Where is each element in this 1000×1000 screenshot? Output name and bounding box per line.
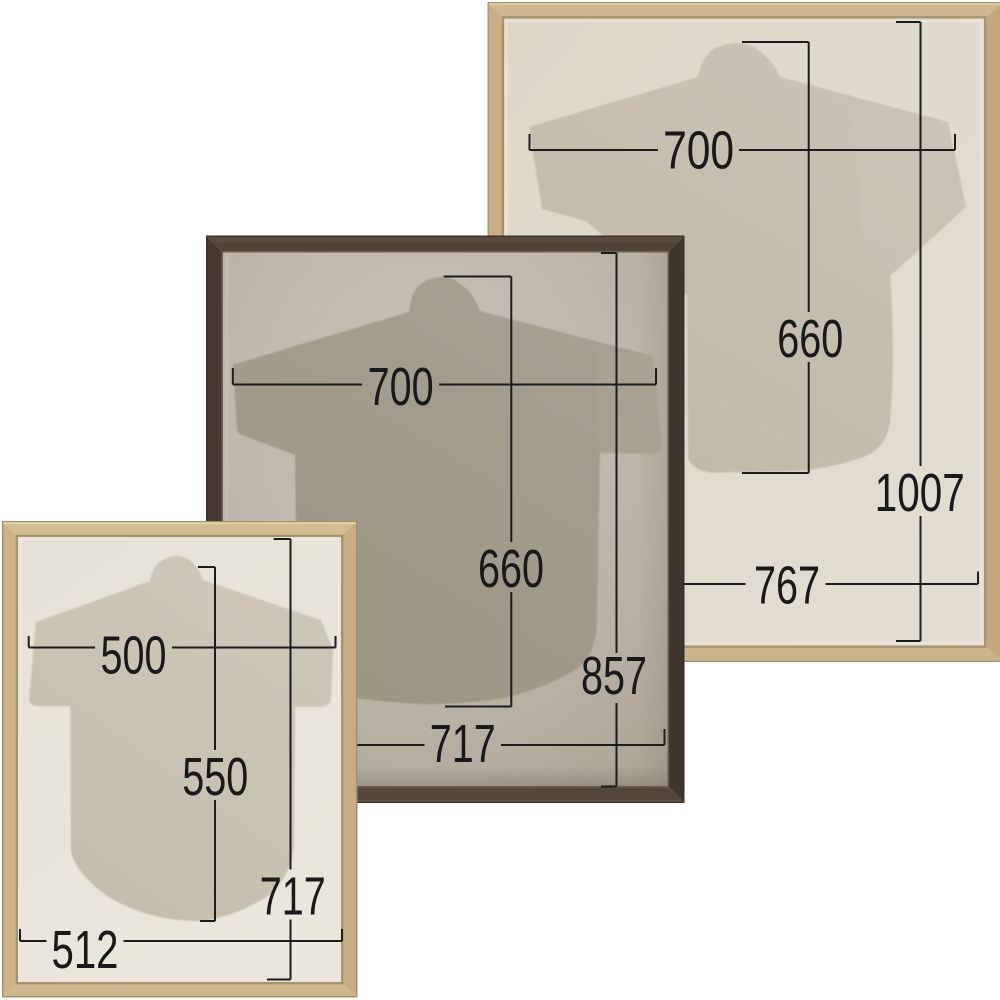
svg-text:660: 660: [777, 309, 843, 369]
svg-text:700: 700: [663, 121, 734, 181]
svg-text:500: 500: [100, 626, 166, 686]
svg-text:700: 700: [368, 357, 434, 417]
svg-text:857: 857: [581, 646, 647, 706]
svg-text:717: 717: [260, 867, 326, 927]
svg-text:550: 550: [182, 747, 248, 807]
svg-text:717: 717: [430, 714, 496, 774]
svg-text:660: 660: [478, 539, 544, 599]
svg-text:512: 512: [51, 920, 118, 980]
svg-text:1007: 1007: [875, 463, 965, 523]
svg-text:767: 767: [754, 556, 820, 616]
